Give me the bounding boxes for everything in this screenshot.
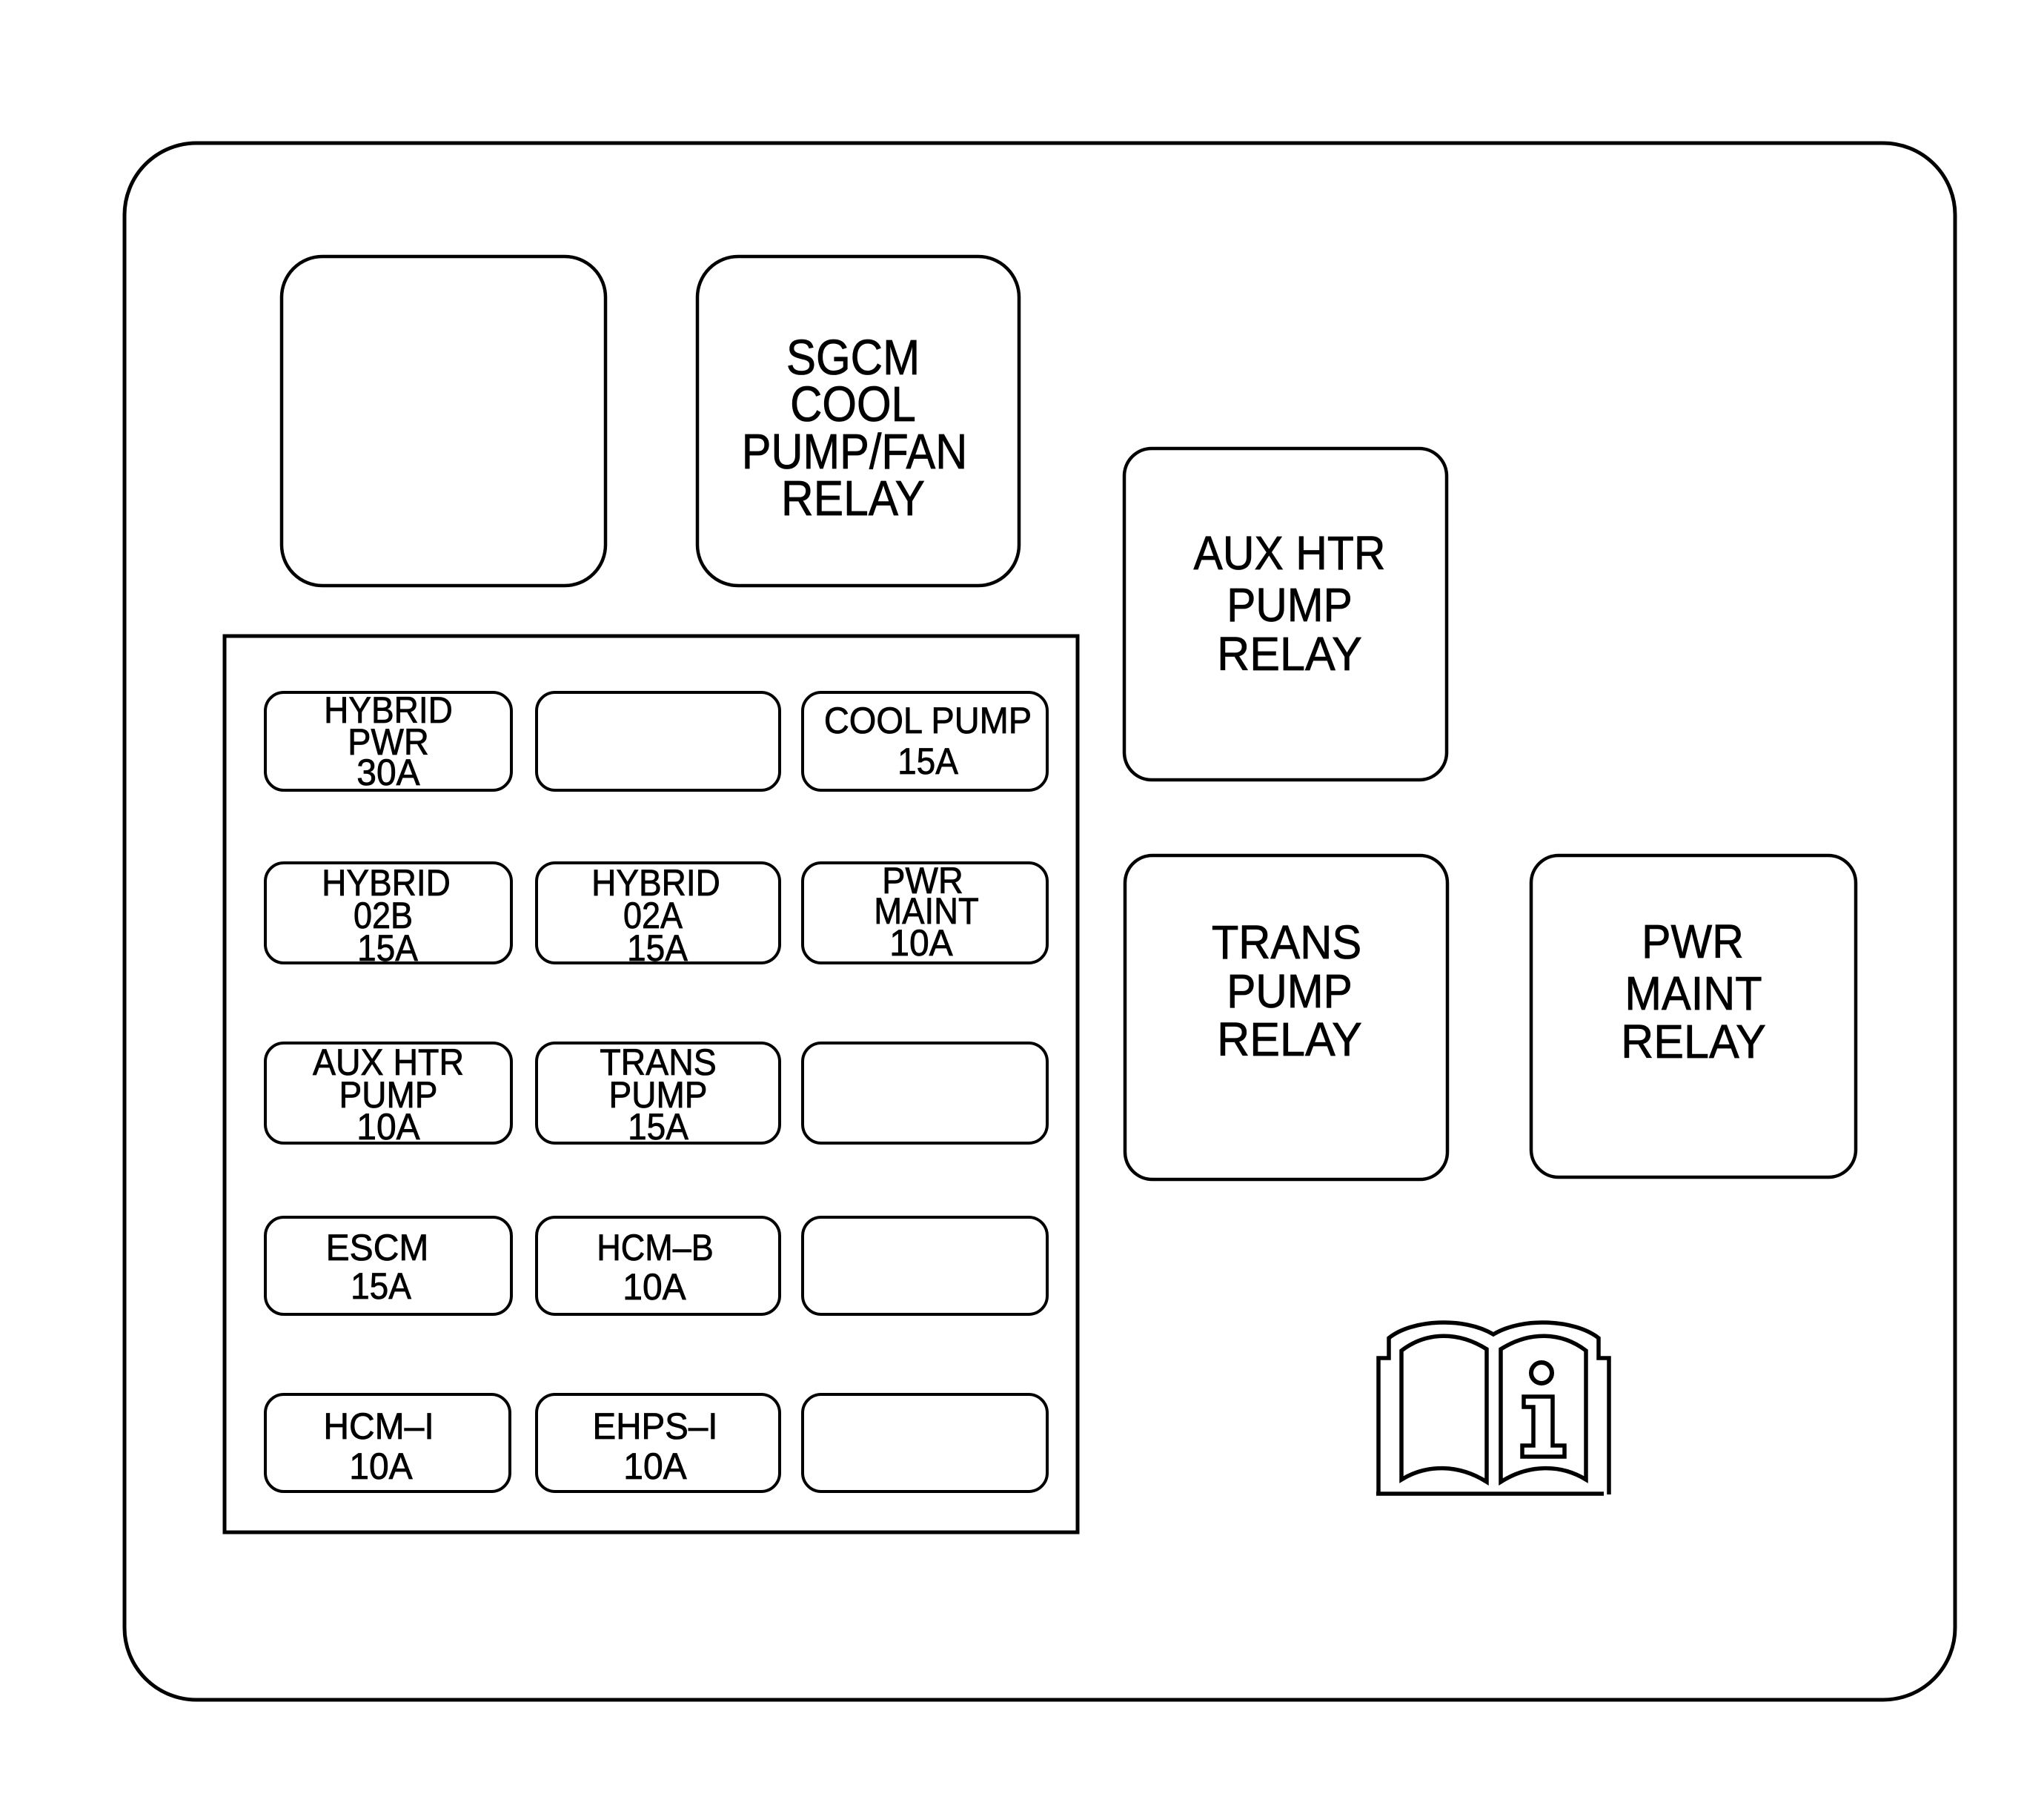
svg-text:PUMP: PUMP — [1227, 579, 1353, 632]
svg-text:10A: 10A — [889, 923, 953, 964]
svg-text:RELAY: RELAY — [1217, 1013, 1362, 1067]
svg-text:PUMP: PUMP — [1227, 965, 1353, 1019]
svg-text:RELAY: RELAY — [1621, 1016, 1766, 1069]
svg-text:COOL PUMP: COOL PUMP — [824, 701, 1032, 742]
svg-text:RELAY: RELAY — [1217, 628, 1362, 681]
svg-text:HCM–B: HCM–B — [597, 1228, 713, 1269]
svg-text:RELAY: RELAY — [781, 470, 925, 526]
svg-text:15A: 15A — [628, 1107, 688, 1148]
svg-text:10A: 10A — [349, 1446, 413, 1487]
svg-text:15A: 15A — [357, 928, 418, 969]
svg-text:AUX HTR: AUX HTR — [1194, 527, 1386, 580]
svg-text:EHPS–I: EHPS–I — [593, 1406, 718, 1447]
svg-text:TRANS: TRANS — [1212, 916, 1361, 969]
svg-text:10A: 10A — [623, 1267, 686, 1308]
svg-text:COOL: COOL — [790, 377, 916, 432]
svg-text:15A: 15A — [351, 1266, 411, 1307]
svg-text:30A: 30A — [356, 752, 420, 793]
svg-text:HCM–I: HCM–I — [323, 1406, 434, 1447]
svg-text:MAINT: MAINT — [1625, 967, 1762, 1020]
svg-text:15A: 15A — [897, 741, 958, 782]
svg-text:ESCM: ESCM — [326, 1228, 429, 1268]
svg-text:PWR: PWR — [1642, 916, 1744, 969]
svg-text:15A: 15A — [627, 928, 688, 969]
svg-text:10A: 10A — [623, 1446, 687, 1487]
svg-text:10A: 10A — [356, 1107, 420, 1148]
